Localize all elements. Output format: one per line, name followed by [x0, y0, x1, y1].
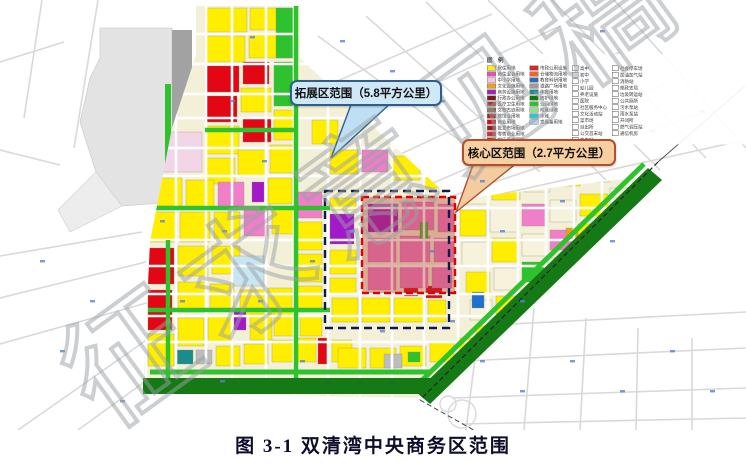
legend-item: 医院: [572, 98, 607, 104]
legend-facility-icon: [612, 118, 619, 124]
parcel: [175, 350, 193, 364]
legend-color-swatch: [530, 102, 539, 107]
parcel: [205, 36, 245, 62]
legend-item-label: 通信机房: [620, 131, 638, 136]
legend-item-label: 消防站: [620, 79, 634, 84]
legend-item: 公园绿地: [530, 102, 568, 107]
legend-item: 行政办公用地: [487, 96, 525, 101]
legend-item-label: 批发市场用地: [498, 126, 525, 131]
legend-item: 中小学用地: [487, 78, 525, 83]
legend-item-label: 污水泵站: [620, 105, 638, 110]
legend-color-swatch: [530, 96, 539, 101]
parcel: [205, 8, 247, 32]
legend-item-label: 行政办公用地: [498, 96, 525, 101]
legend-item: 水域: [530, 114, 568, 119]
legend-item: 幼儿园: [572, 85, 607, 91]
parcel: [462, 242, 488, 266]
parcel: [268, 178, 292, 204]
expansion-area-label: 拓展区范围（5.8平方公里）: [295, 85, 438, 101]
legend-item: 文化活动站: [572, 111, 607, 117]
parcel: [554, 166, 580, 186]
legend-facility-icon: [572, 79, 579, 85]
legend-item-label: 附属绿地: [540, 108, 558, 113]
parcel: [272, 208, 296, 234]
legend-item: 居住用地: [487, 66, 525, 71]
legend-item-label: 商务设施用地: [498, 90, 525, 95]
legend-color-swatch: [530, 90, 539, 95]
core-area-label: 核心区范围（2.7平方公里）: [468, 145, 611, 161]
legend-item: 文物古迹用地: [487, 108, 525, 113]
legend-facility-icon: [612, 98, 619, 104]
parcel: [214, 212, 240, 240]
parcel: [178, 282, 206, 312]
legend-item: 防护绿地: [530, 96, 568, 101]
parcel: [558, 166, 568, 178]
legend-item-label: 文化设施用地: [498, 84, 525, 89]
legend-facility-column-2: 社会停车场加油加气站消防站邮政支局垃圾转运站公共厕所污水泵站雨水泵站开闭所燃气调…: [612, 66, 643, 143]
parcel: [332, 298, 358, 322]
legend-color-swatch: [487, 114, 496, 119]
parcel: [298, 192, 322, 218]
legend-item-label: 市政公用设施: [540, 66, 567, 71]
parcel: [298, 254, 322, 282]
legend-landuse-column-2: 市政公用设施仓储物流用地教育科研用地道路广场用地体育用地防护绿地公园绿地附属绿地…: [530, 66, 568, 143]
legend-facility-icon: [612, 111, 619, 117]
legend-color-swatch: [487, 102, 496, 107]
legend-item-label: 商住混合用地: [498, 72, 525, 77]
legend-item-label: 公园绿地: [540, 102, 558, 107]
legend-item-label: 社区服务中心: [580, 105, 607, 110]
legend-item-label: 公交首末站: [580, 131, 603, 136]
legend-item-label: 文化活动站: [580, 111, 603, 116]
parcel: [178, 246, 208, 276]
parcel: [338, 348, 366, 368]
parcel: [460, 210, 486, 236]
legend-facility-icon: [572, 131, 579, 137]
parcel: [550, 200, 576, 222]
parcel: [244, 210, 268, 236]
legend-color-swatch: [487, 78, 496, 83]
legend-color-swatch: [487, 96, 496, 101]
legend-item-label: 零售商业用地: [498, 132, 525, 137]
legend-item: 初中: [572, 72, 607, 78]
legend-facility-icon: [572, 118, 579, 124]
legend-item: 文化设施用地: [487, 84, 525, 89]
legend-color-swatch: [487, 72, 496, 77]
legend-item-label: 菜市场: [580, 118, 594, 123]
expansion-area-callout: 拓展区范围（5.8平方公里）: [290, 80, 442, 106]
parcel: [362, 298, 390, 322]
parcel: [196, 350, 212, 364]
legend-item: 雨水泵站: [612, 111, 643, 117]
legend-item: 小学: [572, 79, 607, 85]
legend-item-label: 养老设施: [580, 92, 598, 97]
legend-color-swatch: [487, 90, 496, 95]
parcel: [252, 182, 264, 202]
parcel: [408, 352, 420, 362]
legend-item: 高中: [572, 66, 607, 72]
legend-item: 通信机房: [612, 131, 643, 137]
parcel: [490, 208, 518, 232]
legend-color-swatch: [530, 114, 539, 119]
legend-columns: 居住用地商住混合用地中小学用地文化设施用地商务设施用地行政办公用地医疗卫生用地文…: [487, 66, 746, 143]
legend-facility-icon: [612, 92, 619, 98]
parcel: [208, 316, 232, 342]
legend-color-swatch: [487, 66, 496, 71]
legend-facility-icon: [612, 124, 619, 130]
legend-item: 市政公用设施: [530, 66, 568, 71]
legend-item: 开闭所: [612, 118, 643, 124]
legend-item: 燃气调压站: [612, 124, 643, 130]
legend-item-label: 雨水泵站: [620, 111, 638, 116]
figure-caption: 图 3-1 双清湾中央商务区范围: [0, 431, 746, 458]
parcel: [600, 248, 620, 266]
legend-facility-icon: [612, 79, 619, 85]
legend-facility-icon: [612, 131, 619, 137]
legend-item: 菜市场: [572, 118, 607, 124]
figure-page: 图 例 居住用地商住混合用地中小学用地文化设施用地商务设施用地行政办公用地医疗卫…: [0, 0, 746, 470]
legend-facility-column-1: 高中初中小学幼儿园养老设施医院社区服务中心文化活动站菜市场派出所公交首末站变电站: [572, 66, 607, 143]
legend-item: 道路广场用地: [530, 84, 568, 89]
legend-facility-icon: [572, 66, 579, 72]
legend-item-label: 防护绿地: [540, 96, 558, 101]
legend-title: 图 例: [487, 56, 746, 64]
legend-item-label: 道路广场用地: [540, 84, 567, 89]
legend-item-label: 居住用地: [498, 66, 516, 71]
parcel: [244, 344, 268, 364]
parcel: [330, 278, 356, 294]
legend-item-label: 派出所: [580, 124, 594, 129]
legend-color-swatch: [530, 66, 539, 71]
legend-item: 派出所: [572, 124, 607, 130]
legend-item-label: 旅馆业用地: [498, 114, 521, 119]
legend-item: 旅馆业用地: [487, 114, 525, 119]
legend-item: 加油加气站: [612, 72, 643, 78]
parcel: [330, 250, 356, 274]
legend-item-label: 初中: [580, 72, 589, 77]
legend-item-label: 中小学用地: [498, 78, 521, 83]
legend-facility-icon: [572, 92, 579, 98]
legend-item-label: 医疗卫生用地: [498, 102, 525, 107]
legend-item-label: 加油加气站: [620, 72, 643, 77]
legend-item: 医疗卫生用地: [487, 102, 525, 107]
parcel: [492, 238, 518, 262]
legend-item: 邮政支局: [612, 85, 643, 91]
legend-item: 社区服务中心: [572, 105, 607, 111]
legend-item-label: 小学: [580, 79, 589, 84]
map-legend: 图 例 居住用地商住混合用地中小学用地文化设施用地商务设施用地行政办公用地医疗卫…: [484, 54, 746, 145]
parcel: [148, 212, 176, 242]
legend-facility-icon: [572, 85, 579, 91]
parcel: [234, 310, 246, 330]
parcel: [394, 298, 424, 322]
legend-color-swatch: [530, 84, 539, 89]
legend-item-label: 体育用地: [540, 90, 558, 95]
parcel: [494, 268, 518, 290]
core-area-callout: 核心区范围（2.7平方公里）: [462, 139, 616, 166]
legend-item-label: 发展备用地: [540, 120, 563, 125]
legend-item: 养老设施: [572, 92, 607, 98]
parcel: [362, 150, 388, 172]
legend-item: 公交首末站: [572, 131, 607, 137]
parcel: [298, 222, 322, 250]
legend-item: 仓储物流用地: [530, 72, 568, 77]
parcel: [210, 284, 234, 310]
legend-landuse-column-1: 居住用地商住混合用地中小学用地文化设施用地商务设施用地行政办公用地医疗卫生用地文…: [487, 66, 525, 143]
parcel: [466, 272, 490, 294]
legend-item: 商务设施用地: [487, 90, 525, 95]
legend-color-swatch: [487, 120, 496, 125]
parcel: [232, 256, 264, 286]
legend-item-label: 公共厕所: [620, 98, 638, 103]
legend-item: 附属绿地: [530, 108, 568, 113]
legend-item-label: 商业用地: [498, 120, 516, 125]
legend-item-label: 幼儿园: [580, 85, 594, 90]
legend-color-swatch: [487, 132, 496, 137]
legend-item: 污水泵站: [612, 105, 643, 111]
legend-item-label: 垃圾转运站: [620, 92, 643, 97]
legend-facility-icon: [572, 111, 579, 117]
legend-color-swatch: [487, 108, 496, 113]
parcel: [238, 150, 266, 176]
legend-facility-icon: [612, 66, 619, 72]
legend-facility-icon: [612, 105, 619, 111]
legend-item-label: 燃气调压站: [620, 124, 643, 129]
legend-facility-icon: [612, 72, 619, 78]
parcel: [300, 316, 322, 336]
legend-item: 商住混合用地: [487, 72, 525, 77]
legend-item-label: 教育科研用地: [540, 78, 567, 83]
legend-item: 零售商业用地: [487, 132, 525, 137]
legend-color-swatch: [487, 126, 496, 131]
legend-color-swatch: [487, 84, 496, 89]
legend-item: 批发市场用地: [487, 126, 525, 131]
legend-item: 垃圾转运站: [612, 92, 643, 98]
legend-facility-icon: [572, 98, 579, 104]
legend-color-swatch: [530, 78, 539, 83]
legend-item: 体育用地: [530, 90, 568, 95]
legend-item: 发展备用地: [530, 120, 568, 125]
legend-facility-icon: [612, 85, 619, 91]
parcel: [250, 314, 272, 340]
legend-color-swatch: [530, 120, 539, 125]
parcel: [216, 346, 240, 366]
parcel: [522, 234, 546, 256]
legend-item: 消防站: [612, 79, 643, 85]
legend-color-swatch: [530, 108, 539, 113]
core-area-overlay: [362, 197, 455, 293]
parcel: [205, 66, 239, 92]
legend-color-swatch: [530, 72, 539, 77]
legend-item-label: 邮政支局: [620, 85, 638, 90]
legend-item: 公共厕所: [612, 98, 643, 104]
legend-item-label: 医院: [580, 98, 589, 103]
legend-item-label: 水域: [540, 114, 549, 119]
parcel: [186, 180, 214, 208]
legend-item: 教育科研用地: [530, 78, 568, 83]
legend-item: 社会停车场: [612, 66, 643, 72]
legend-item-label: 高中: [580, 66, 589, 71]
parcel: [312, 120, 338, 144]
legend-facility-icon: [572, 72, 579, 78]
legend-item-label: 仓储物流用地: [540, 72, 567, 77]
legend-item-label: 文物古迹用地: [498, 108, 525, 113]
legend-item-label: 开闭所: [620, 118, 634, 123]
legend-facility-icon: [572, 105, 579, 111]
legend-facility-icon: [572, 124, 579, 130]
legend-item-label: 社会停车场: [620, 66, 643, 71]
parcel: [428, 300, 446, 322]
legend-item: 商业用地: [487, 120, 525, 125]
